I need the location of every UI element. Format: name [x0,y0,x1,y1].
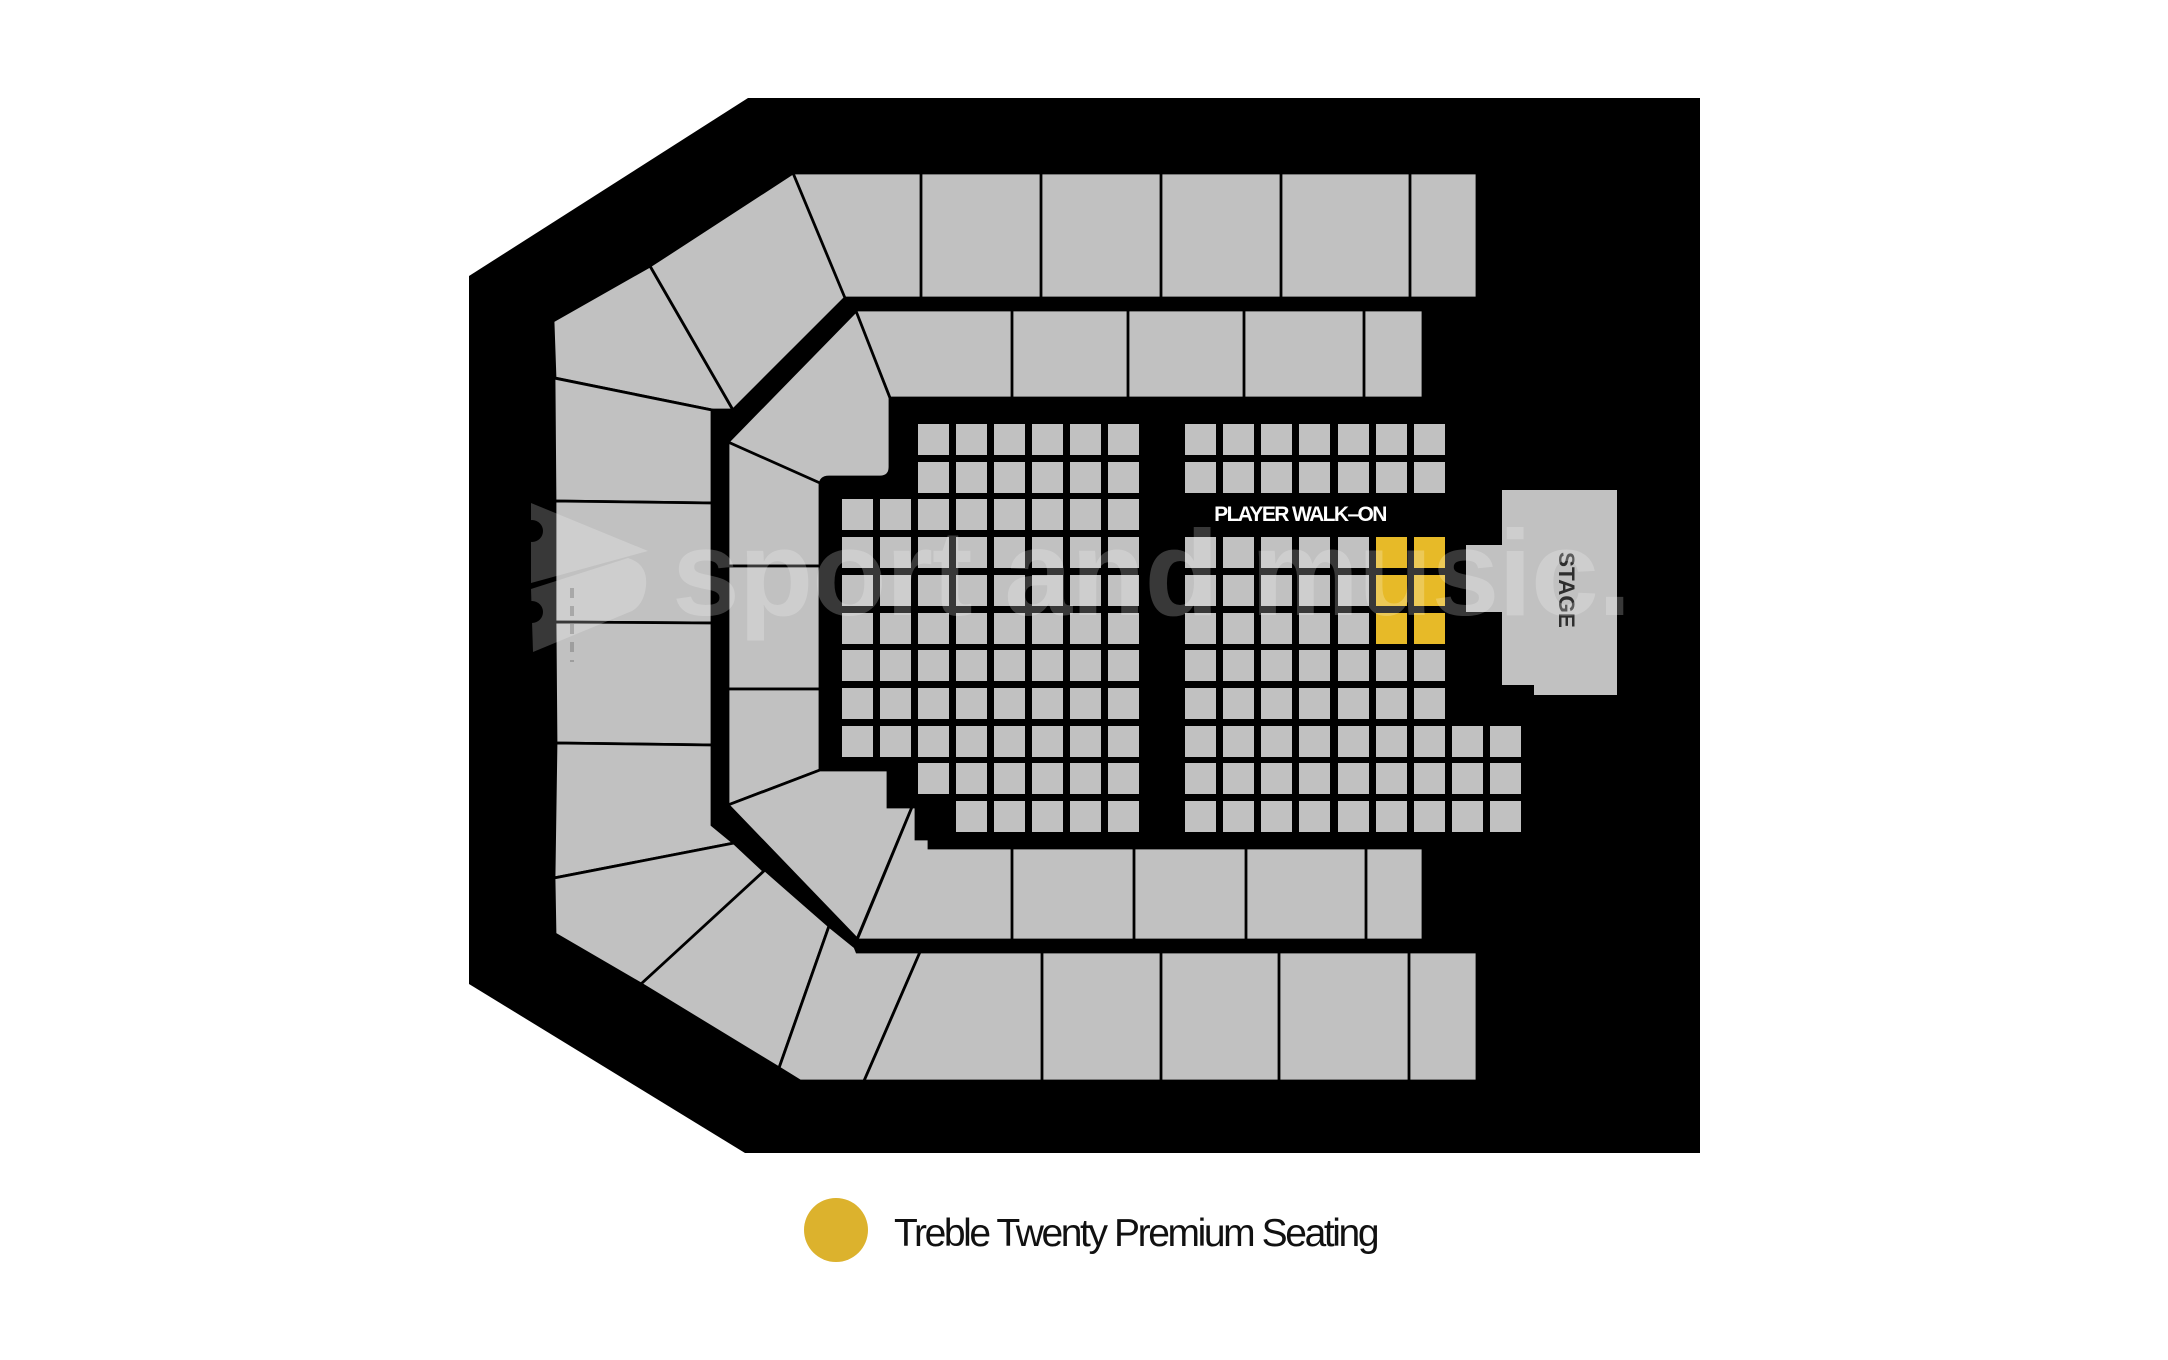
svg-text:Treble Twenty Premium Seating: Treble Twenty Premium Seating [894,1212,1378,1255]
svg-text:sport and music.: sport and music. [672,505,1631,641]
svg-text:PLAYER WALK–ON: PLAYER WALK–ON [1214,503,1386,526]
